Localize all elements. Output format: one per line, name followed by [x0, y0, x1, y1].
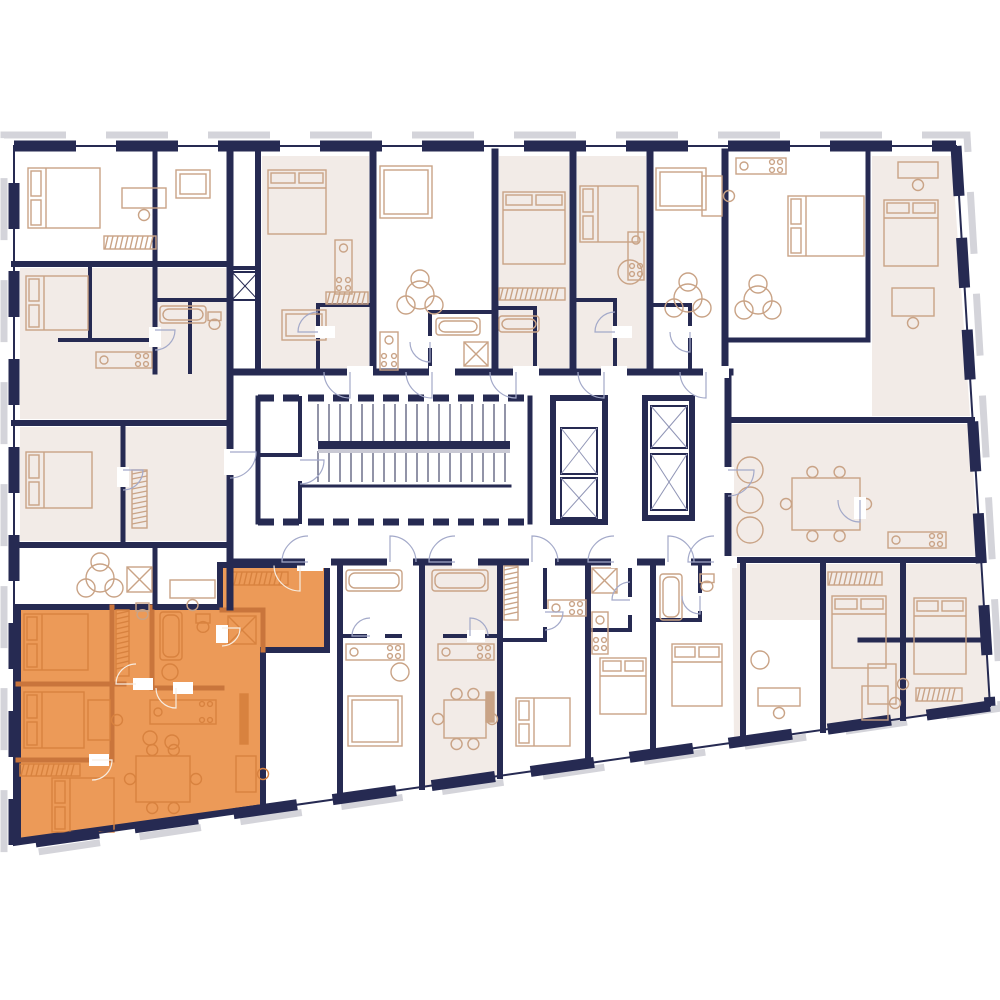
room-fill-white: [746, 620, 820, 739]
door-gap: [665, 556, 691, 568]
tv: [240, 694, 248, 744]
door-gap: [529, 556, 555, 568]
room-fill: [425, 565, 497, 788]
door-gap: [305, 556, 331, 568]
tv: [486, 692, 494, 722]
door-gap: [387, 556, 413, 568]
door-gap: [601, 366, 627, 378]
door-gap: [224, 449, 236, 475]
door-gap: [711, 556, 737, 568]
door-gap: [429, 366, 455, 378]
furniture-tv: [240, 694, 248, 744]
door-gap: [513, 366, 539, 378]
door-gap: [611, 556, 637, 568]
door-gap: [722, 467, 734, 493]
room-fill: [20, 268, 226, 419]
furniture-tv: [486, 692, 494, 722]
floor-plan: [0, 0, 1000, 1000]
stair-rail: [318, 441, 510, 449]
door-gap: [347, 366, 373, 378]
door-gap: [452, 556, 478, 568]
door-gap: [703, 366, 729, 378]
floor-plan-canvas: [0, 0, 1000, 1000]
